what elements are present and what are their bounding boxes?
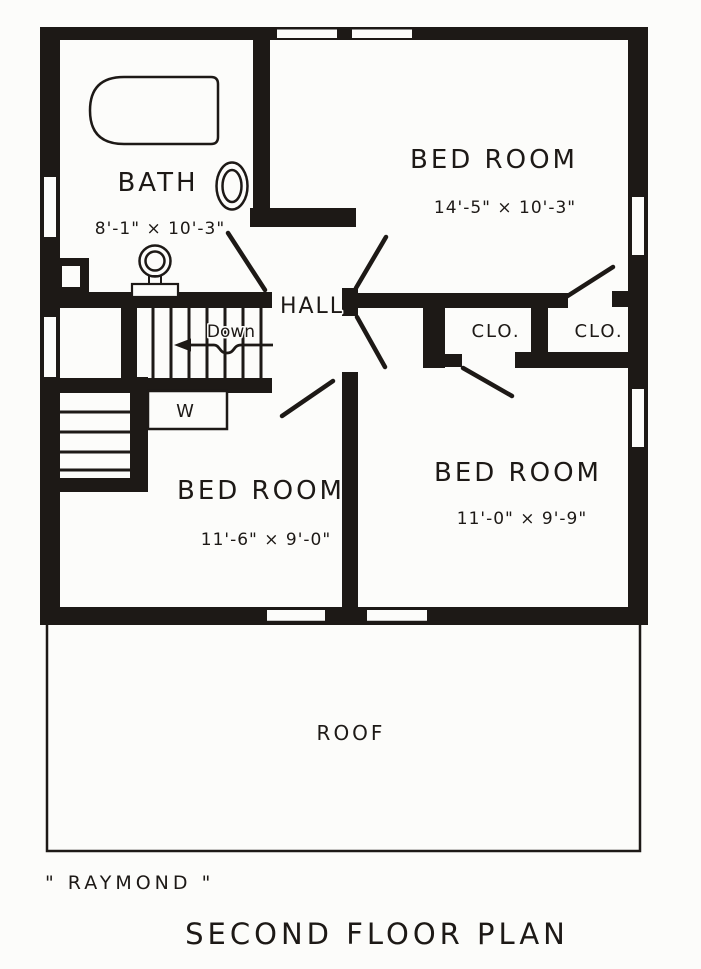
- window-right-1: [632, 197, 644, 255]
- window-bottom-2: [367, 610, 427, 622]
- sink-bowl-inner: [146, 252, 165, 271]
- hall-label: HALL: [280, 294, 344, 319]
- bedroom-left-dims: 11'-6" × 9'-0": [201, 530, 331, 550]
- bedroom-top-label: BED ROOM: [410, 145, 578, 175]
- walls: [40, 27, 648, 625]
- door-closet-right: [566, 267, 613, 297]
- wall-stairwell-bottom: [40, 478, 148, 492]
- down-arrow-head: [174, 339, 191, 352]
- window-left-2: [44, 317, 56, 377]
- door-swings: [228, 233, 613, 416]
- stairs-down-label: Down: [207, 322, 255, 342]
- bedroom-right-dims: 11'-0" × 9'-9": [457, 509, 587, 529]
- sink-base: [132, 284, 178, 297]
- door-bedroom-right: [357, 317, 385, 367]
- roof-label: ROOF: [317, 721, 386, 745]
- wall-bath-bedroom-partition: [253, 34, 270, 224]
- wall-closets-bottom: [515, 352, 648, 368]
- door-bedroom-left: [282, 381, 333, 416]
- sheet-title: SECOND FLOOR PLAN: [185, 917, 569, 951]
- wall-door-jamb-right: [612, 291, 630, 307]
- wall-bath-bottom: [250, 208, 356, 227]
- floor-plan-drawing: BATH 8'-1" × 10'-3" BED ROOM 14'-5" × 10…: [0, 0, 701, 969]
- window-top-2: [352, 30, 412, 39]
- window-bottom-1: [267, 610, 325, 622]
- wall-exterior-right: [628, 27, 648, 625]
- bathtub: [90, 77, 218, 144]
- window-right-2: [632, 389, 644, 447]
- stair-treads-upper: [153, 308, 261, 378]
- bath-dims: 8'-1" × 10'-3": [95, 219, 225, 239]
- door-bedroom-top: [356, 237, 386, 288]
- wall-exterior-top: [40, 27, 648, 40]
- chimney-flue: [62, 266, 80, 287]
- wall-closet-door-jamb: [443, 354, 462, 367]
- bath-label: BATH: [117, 168, 198, 198]
- closet-right-label: CLO.: [574, 321, 623, 342]
- sink-bowl-outer: [140, 246, 171, 277]
- window-left-1: [44, 177, 56, 237]
- bedroom-right-label: BED ROOM: [434, 458, 602, 488]
- wall-bedroom-top-bottom: [342, 293, 568, 308]
- wall-stair-side: [121, 305, 137, 381]
- floor-plan-sheet: BATH 8'-1" × 10'-3" BED ROOM 14'-5" × 10…: [0, 0, 701, 969]
- bedroom-left-label: BED ROOM: [177, 476, 345, 506]
- wall-closet-left-side: [423, 308, 445, 368]
- room-labels: BATH 8'-1" × 10'-3" BED ROOM 14'-5" × 10…: [95, 145, 624, 745]
- linen-closet-label: W: [176, 401, 196, 422]
- door-closet-left: [463, 368, 512, 396]
- window-top-1: [277, 30, 337, 39]
- closet-left-label: CLO.: [471, 321, 520, 342]
- door-bath: [228, 233, 265, 290]
- toilet-inner: [223, 170, 242, 202]
- wall-stairwell-right: [130, 377, 148, 492]
- house-name-caption: " RAYMOND ": [45, 872, 214, 894]
- stair-treads-lower: [60, 412, 130, 470]
- bedroom-top-dims: 14'-5" × 10'-3": [434, 198, 576, 218]
